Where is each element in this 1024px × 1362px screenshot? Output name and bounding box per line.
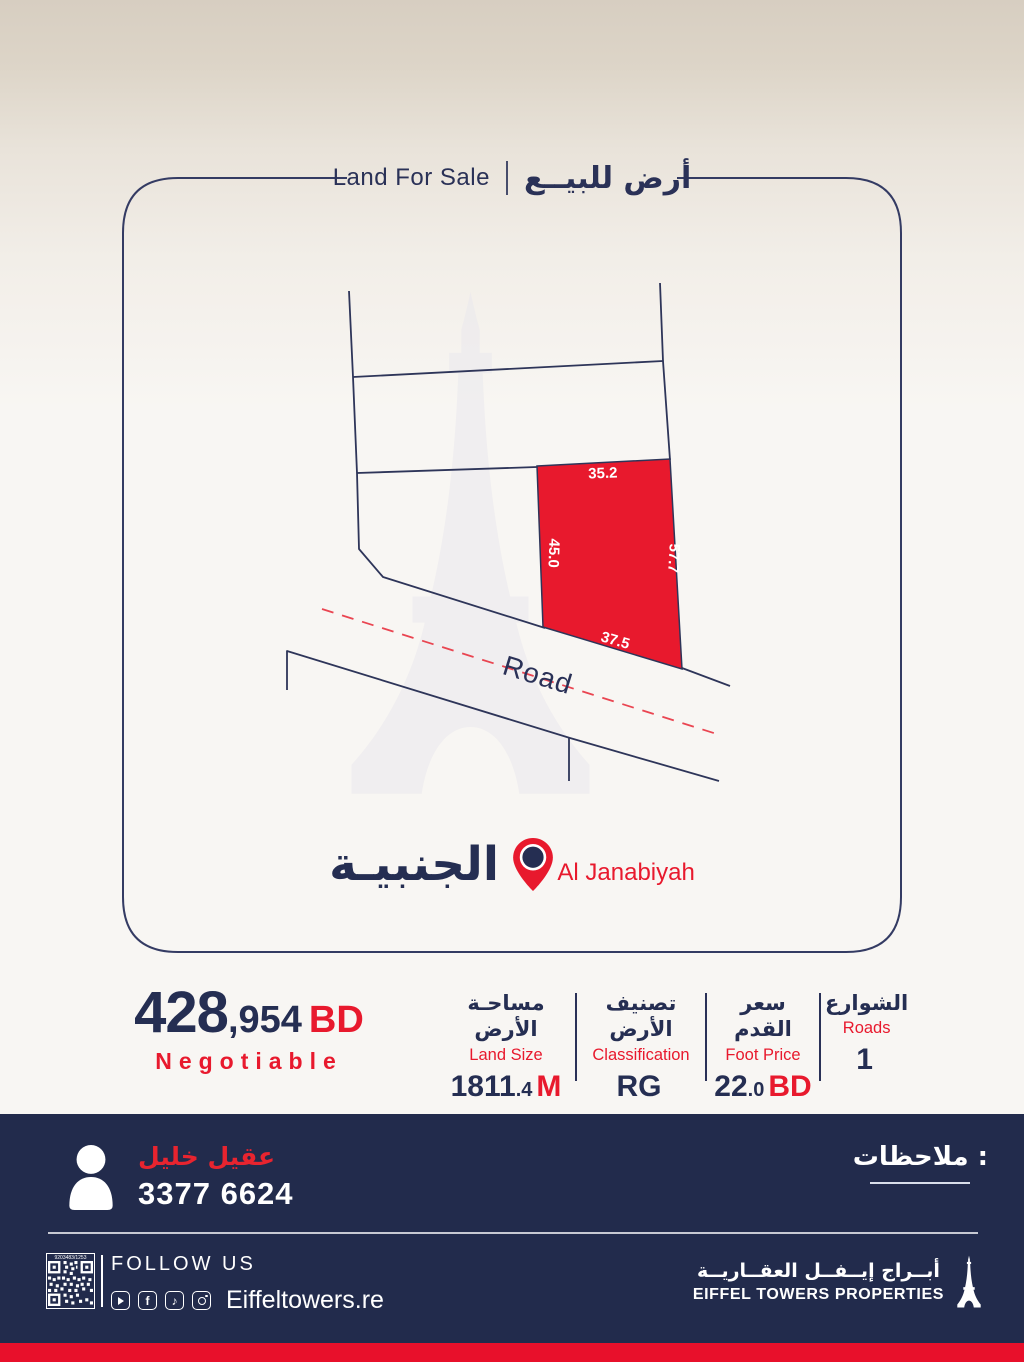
land-sale-flyer: { "header": { "title_en": "Land For Sale…: [0, 0, 1024, 1362]
footer-vertical-divider: [101, 1255, 103, 1307]
detail-value: 22.0BD: [711, 1072, 815, 1102]
instagram-icon[interactable]: [192, 1291, 211, 1310]
youtube-icon[interactable]: [111, 1291, 130, 1310]
details-table: مساحـة الأرض Land Size 1811.4M تصنيف الأ…: [437, 990, 915, 1084]
detail-header-arabic: سعر القدم: [711, 990, 815, 1043]
qr-code[interactable]: 9203483/1253: [46, 1253, 95, 1309]
detail-header-english: Foot Price: [711, 1046, 815, 1065]
person-icon: [64, 1144, 118, 1210]
company-name-english: EIFFEL TOWERS PROPERTIES: [693, 1286, 944, 1304]
detail-header-arabic: الشوارع: [825, 990, 908, 1016]
tiktok-icon[interactable]: ♪: [165, 1291, 184, 1310]
title-divider: [506, 161, 508, 195]
notes-block: ملاحظات :: [853, 1142, 988, 1184]
company-name-arabic: أبــراج إيــفــل العقــاريــة: [693, 1260, 944, 1283]
plot-map: 35.2 45.0 57.7 37.5 Road: [0, 0, 1024, 960]
agent-name: عقيل خليل: [138, 1142, 294, 1171]
detail-header-arabic: تصنيف الأرض: [581, 990, 701, 1043]
location-name-arabic: الجنبيـة: [329, 834, 499, 895]
price-note: Negotiable: [116, 1048, 382, 1075]
price-main: 428: [134, 980, 228, 1045]
detail-value: RG: [581, 1072, 701, 1102]
title-english: Land For Sale: [333, 164, 490, 192]
notes-label: ملاحظات :: [853, 1142, 988, 1172]
footer: عقيل خليل 3377 6624 ملاحظات : 9203483/12…: [0, 1114, 1024, 1362]
agent-phone[interactable]: 3377 6624: [138, 1176, 294, 1212]
company-logo: أبــراج إيــفــل العقــاريــة EIFFEL TOW…: [693, 1254, 984, 1310]
plot-dim-right: 57.7: [664, 543, 683, 573]
detail-classification: تصنيف الأرض Classification RG: [577, 990, 705, 1084]
card-title: Land For Sale أرض للبيــع: [0, 156, 1024, 200]
detail-value: 1811.4M: [441, 1072, 571, 1102]
map-pin-icon: [513, 838, 553, 891]
plot-dim-top: 35.2: [588, 464, 618, 482]
website-link[interactable]: Eiffeltowers.re: [226, 1286, 384, 1315]
notes-underline: [870, 1182, 970, 1184]
detail-land-size: مساحـة الأرض Land Size 1811.4M: [437, 990, 575, 1084]
footer-red-strip: [0, 1343, 1024, 1362]
follow-us-block: FOLLOW US f ♪ Eiffeltowers.re: [111, 1253, 384, 1315]
detail-header-english: Roads: [825, 1019, 908, 1038]
location-block: الجنبيـة Al Janabiyah: [0, 834, 1024, 895]
location-name-english: Al Janabiyah: [557, 859, 694, 886]
detail-header-english: Land Size: [441, 1046, 571, 1065]
qr-pattern: [48, 1261, 93, 1306]
detail-header-arabic: مساحـة الأرض: [441, 990, 571, 1043]
title-arabic: أرض للبيــع: [524, 162, 691, 195]
price-currency: BD: [309, 999, 364, 1041]
plot-dim-left: 45.0: [544, 538, 562, 568]
agent-contact: عقيل خليل 3377 6624: [64, 1142, 294, 1212]
follow-us-label: FOLLOW US: [111, 1253, 384, 1276]
price-value: 428,954BD: [116, 984, 382, 1042]
detail-header-english: Classification: [581, 1046, 701, 1065]
eiffel-tower-icon: [954, 1254, 984, 1310]
detail-value: 1: [825, 1045, 908, 1075]
footer-divider: [48, 1232, 978, 1234]
price-block: 428,954BD Negotiable: [116, 984, 382, 1075]
detail-foot-price: سعر القدم Foot Price 22.0BD: [707, 990, 819, 1084]
detail-roads: الشوارع Roads 1: [821, 990, 912, 1084]
facebook-icon[interactable]: f: [138, 1291, 157, 1310]
price-rest: ,954: [228, 999, 302, 1041]
